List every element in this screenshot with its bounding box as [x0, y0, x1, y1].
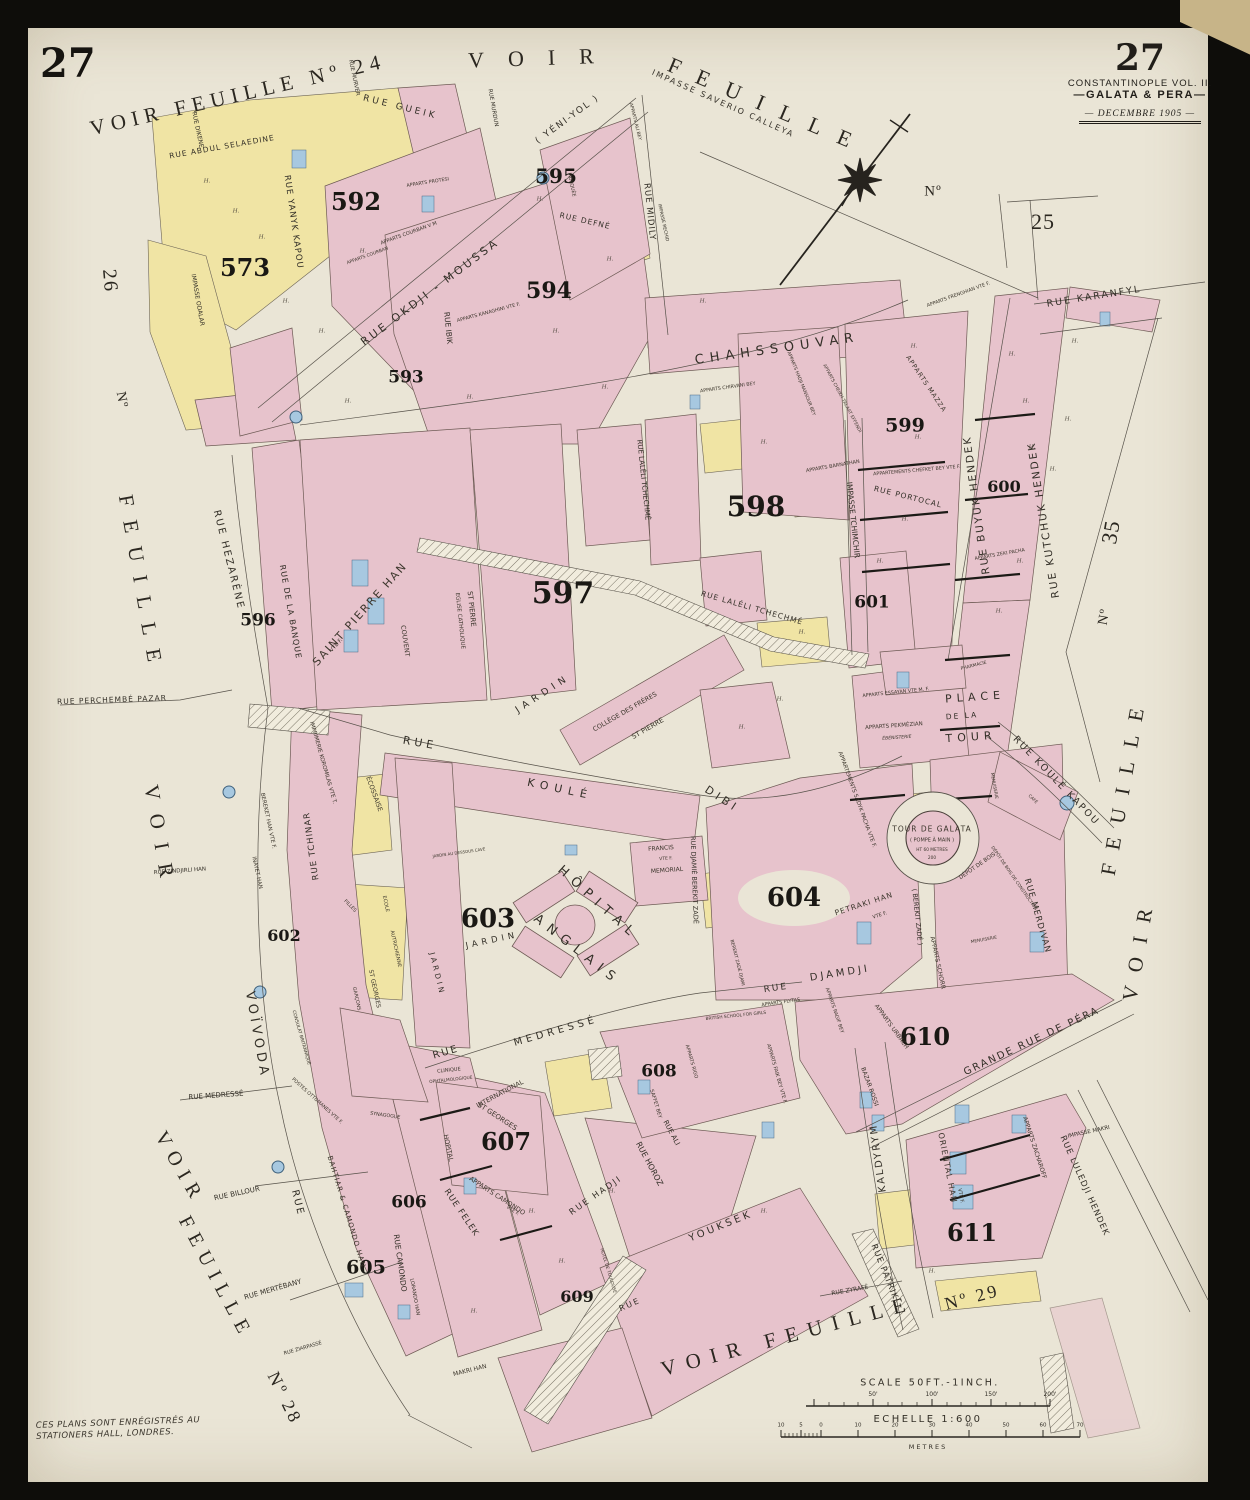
h-mark: H.	[283, 299, 290, 305]
map-label-sheet: Nº	[1097, 608, 1114, 627]
h-mark: H.	[607, 257, 614, 263]
map-label-block: 600	[987, 479, 1020, 495]
h-mark: H.	[902, 517, 909, 523]
scale-feet-tick: 200'	[1043, 1392, 1056, 1398]
scale-metre-tick: 10	[855, 1423, 862, 1429]
h-mark: H.	[700, 299, 707, 305]
h-mark: H.	[553, 329, 560, 335]
h-mark: H.	[877, 559, 884, 565]
title-date: — DECEMBRE 1905 —	[1079, 109, 1201, 124]
h-mark: H.	[1023, 399, 1030, 405]
map-label-block: 594	[526, 280, 572, 302]
map-label-sheet: VOIR	[468, 44, 618, 71]
h-mark: H.	[911, 344, 918, 350]
h-mark: H.	[1029, 445, 1036, 451]
map-label-sheet: Nº	[924, 185, 941, 200]
scale-metres-label: METRES	[909, 1444, 947, 1451]
map-label-block: 606	[391, 1195, 427, 1212]
h-mark: H.	[609, 1189, 616, 1195]
h-mark: H.	[996, 609, 1003, 615]
map-label-bld: VTE F.	[659, 857, 673, 862]
map-label-block: 601	[854, 595, 890, 612]
map-label-sheet: 26	[99, 268, 121, 294]
scale-feet-tick: 150'	[984, 1392, 997, 1398]
map-label-bld: 200	[928, 857, 936, 861]
map-label-sheet: Nº	[113, 391, 130, 410]
map-label-block: 592	[331, 190, 381, 214]
h-mark: H.	[360, 249, 367, 255]
map-label-block: 593	[388, 370, 424, 387]
h-mark: H.	[529, 1209, 536, 1215]
h-mark: H.	[1072, 339, 1079, 345]
scale-metre-tick: 5	[799, 1423, 803, 1429]
h-mark: H.	[233, 209, 240, 215]
scale-metre-tick: 60	[1040, 1423, 1047, 1429]
h-mark: H.	[467, 395, 474, 401]
h-mark: H.	[1065, 417, 1072, 423]
h-mark: H.	[799, 630, 806, 636]
h-mark: H.	[259, 235, 266, 241]
scale-metre-tick: 10	[778, 1423, 785, 1429]
map-label-block: 604	[767, 885, 821, 911]
sheet-number-right: 27	[1058, 40, 1222, 76]
h-mark: H.	[319, 329, 326, 335]
h-mark: H.	[777, 697, 784, 703]
map-label-block: 609	[560, 1289, 593, 1305]
h-mark: H.	[559, 1259, 566, 1265]
title-district: —GALATA & PERA—	[1058, 89, 1222, 101]
map-label-block: 611	[947, 1221, 997, 1245]
title-volume: CONSTANTINOPLE VOL. II.	[1058, 78, 1222, 89]
map-label-street: TOUR	[945, 730, 997, 745]
h-mark: H.	[1017, 559, 1024, 565]
map-label-block: 602	[267, 928, 300, 944]
map-label-street: DE LA	[946, 711, 979, 721]
map-label-block: 607	[481, 1130, 531, 1154]
map-label-block: 573	[220, 256, 270, 280]
scale-feet-label: SCALE 50FT.-1INCH.	[860, 1378, 1000, 1388]
scale-metre-tick: 50	[1003, 1423, 1010, 1429]
map-label-block: 597	[532, 579, 595, 609]
h-mark: H.	[739, 725, 746, 731]
map-label-bld: ( POMPE À MAIN )	[910, 839, 954, 844]
h-mark: H.	[761, 1209, 768, 1215]
h-mark: H.	[761, 440, 768, 446]
map-label-block: 603	[461, 906, 515, 932]
h-mark: H.	[471, 1309, 478, 1315]
sheet-number-left: 27	[40, 40, 96, 87]
map-label-block: 596	[240, 613, 276, 630]
map-label-bld: TOUR DE GALATA	[892, 825, 971, 833]
map-label-block: 598	[727, 493, 785, 521]
map-label-block: 599	[885, 417, 925, 436]
map-label-bld: HT 60 METRES	[916, 849, 948, 853]
h-mark: H.	[915, 435, 922, 441]
h-mark: H.	[1009, 352, 1016, 358]
h-mark: H.	[929, 1269, 936, 1275]
scale-echelle-label: ECHELLE 1:600	[873, 1415, 982, 1425]
buildings-pink-layer	[195, 84, 1160, 1452]
map-label-sheet: 25	[1031, 211, 1055, 233]
map-canvas	[0, 0, 1250, 1500]
h-mark: H.	[204, 179, 211, 185]
h-mark: H.	[537, 197, 544, 203]
h-mark: H.	[602, 385, 609, 391]
scale-feet-tick: 100'	[925, 1392, 938, 1398]
title-block: 27 CONSTANTINOPLE VOL. II. —GALATA & PER…	[1058, 40, 1222, 124]
scale-metre-tick: 70	[1077, 1423, 1084, 1429]
map-label-block: 608	[641, 1064, 677, 1081]
h-mark: H.	[1050, 467, 1057, 473]
scale-feet-tick: 50'	[868, 1392, 877, 1398]
h-mark: H.	[345, 399, 352, 405]
scale-metre-tick: 0	[819, 1423, 823, 1429]
map-label-sheet: 35	[1098, 518, 1124, 545]
